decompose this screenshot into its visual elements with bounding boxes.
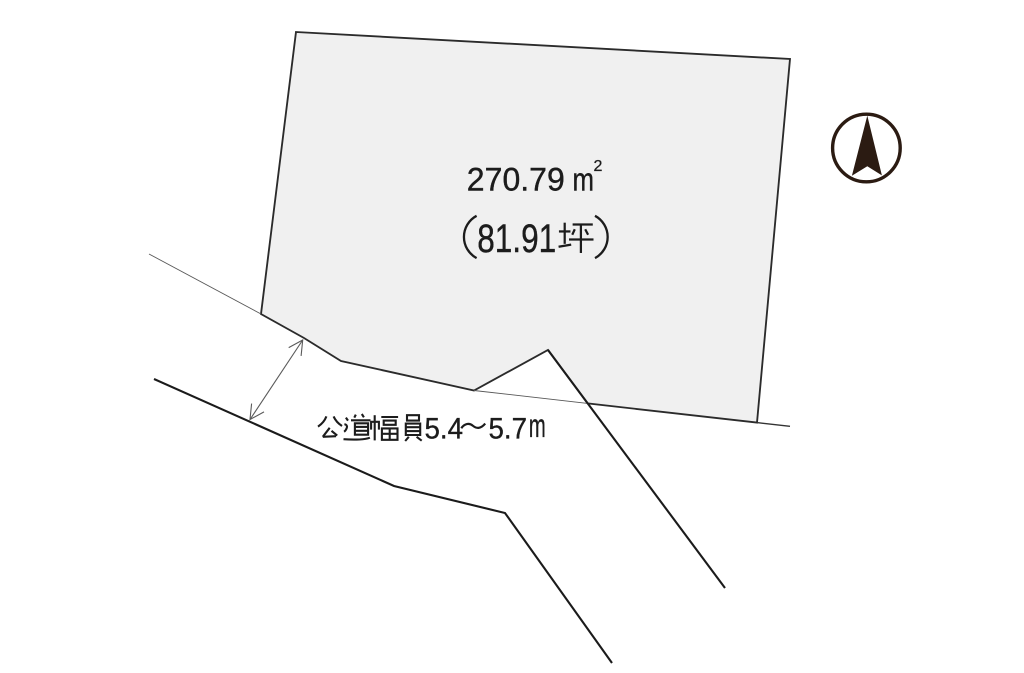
svg-text:81.91: 81.91 [477, 217, 556, 261]
svg-text:2: 2 [594, 158, 603, 175]
svg-text:5.7: 5.7 [489, 413, 528, 446]
svg-text:m: m [529, 407, 546, 444]
svg-text:m: m [573, 161, 595, 197]
svg-text:270.79: 270.79 [467, 161, 565, 197]
svg-text:5.4: 5.4 [425, 413, 464, 446]
